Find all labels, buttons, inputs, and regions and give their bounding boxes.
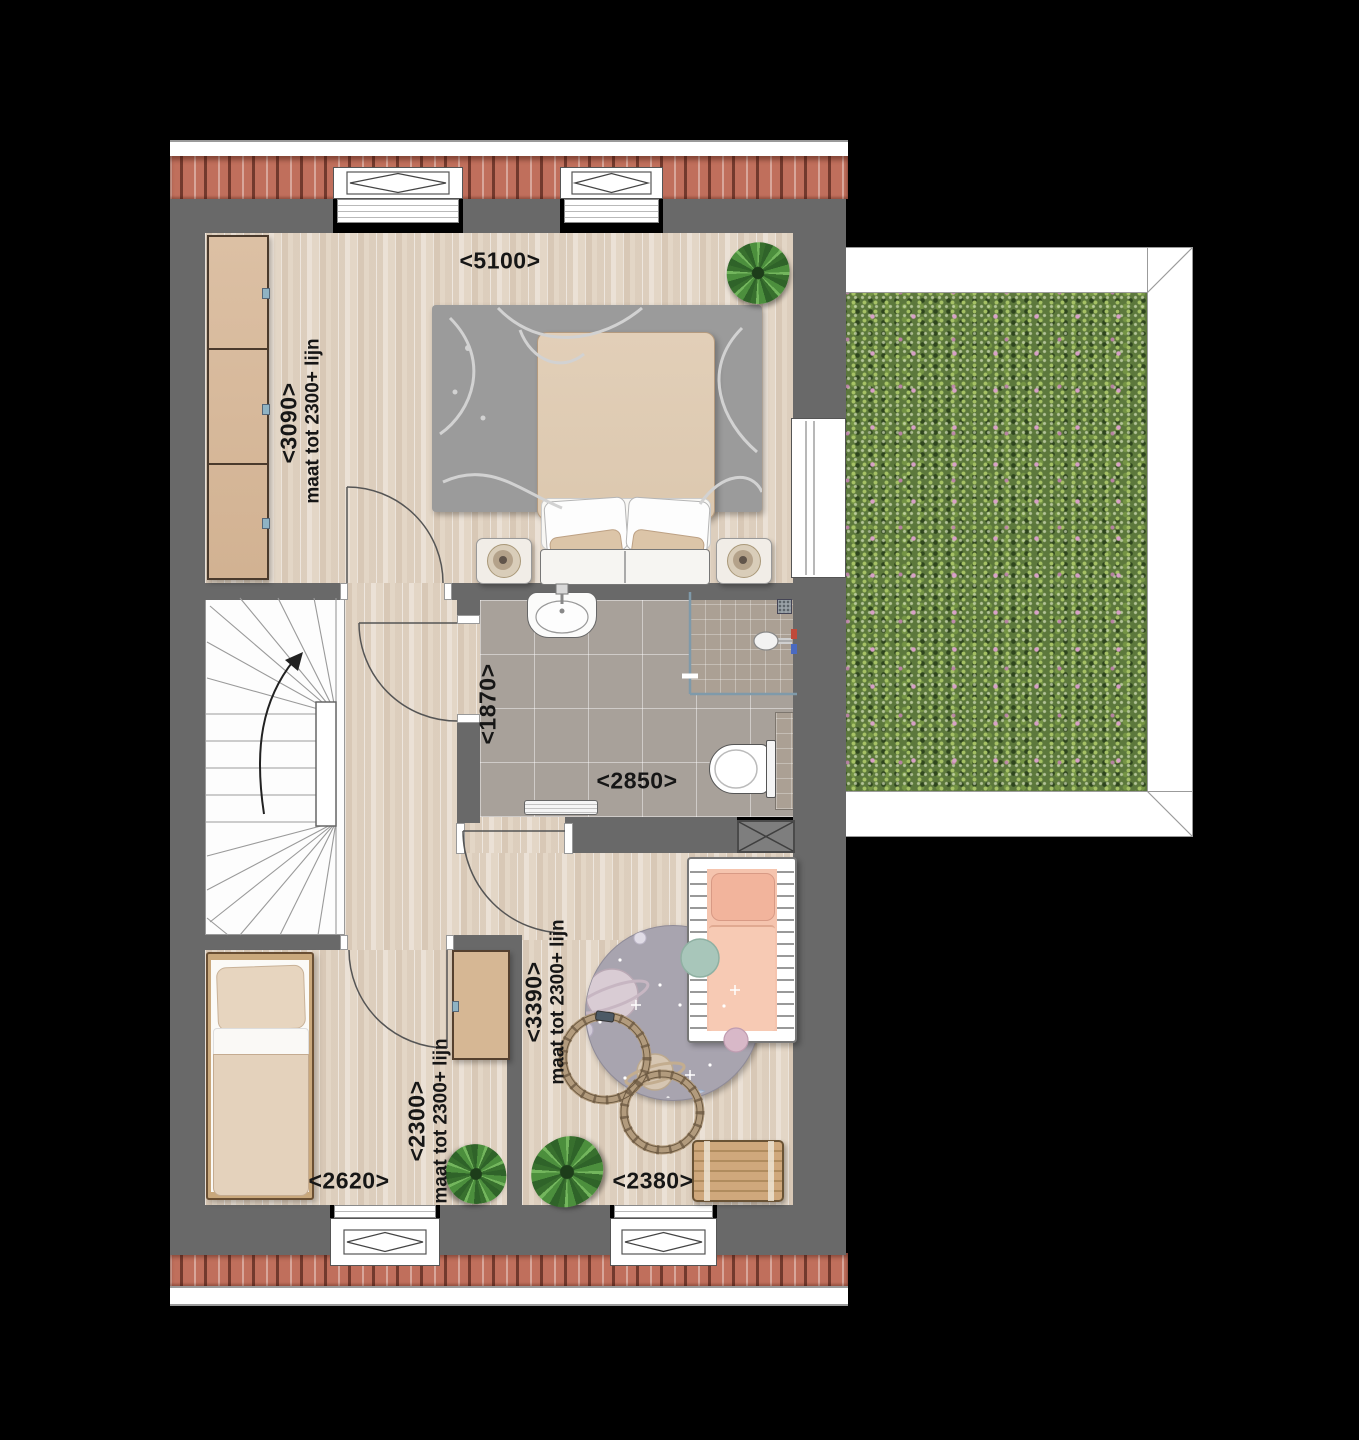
wardrobe-knob2 [262, 404, 270, 415]
stairwell [205, 598, 345, 935]
master-bed-base-split [624, 551, 626, 583]
green-roof-sedum [845, 293, 1147, 791]
floor-plan-canvas: <5100> <3090> maat tot 2300+ lijn <1870>… [0, 0, 1359, 1440]
vent-shaft [737, 820, 795, 853]
wardrobe-knob1 [262, 288, 270, 299]
jamb-bedroom2-right [446, 935, 454, 950]
single-bed-duvet [213, 1054, 309, 1196]
wardrobe-knob3 [262, 518, 270, 529]
jamb-bedroom2-left [340, 935, 348, 950]
toilet-tank [766, 740, 776, 798]
master-bed-duvet [537, 332, 715, 520]
note-bedroom3-ceiling: maat tot 2300+ lijn [549, 919, 568, 1084]
jamb-master-right [444, 583, 452, 600]
jamb-bath-top [457, 615, 480, 624]
shower-drain [777, 599, 792, 614]
lamp-right-core [739, 556, 747, 564]
wardrobe-divider1 [207, 348, 269, 350]
sink [527, 592, 597, 638]
crib-blanket [709, 925, 775, 1031]
wardrobe-divider2 [207, 463, 269, 465]
wardrobe [207, 235, 269, 580]
desk-knob [452, 1001, 459, 1012]
window-sill-top-left [337, 199, 459, 223]
jamb-master-left [340, 583, 348, 600]
hall-floor [345, 583, 460, 950]
lamp-left-core [499, 556, 507, 564]
roof-tiles-bottom [170, 1253, 848, 1286]
wall-bottom-c [717, 1205, 846, 1255]
wall-top-c [663, 199, 846, 233]
toilet-bowl [709, 744, 769, 794]
wall-top-b [463, 199, 560, 233]
crib-pillow [711, 873, 775, 921]
wall-right-upper [793, 233, 846, 418]
dormer-window-bottom-right [610, 1218, 717, 1266]
wall-left [170, 199, 205, 1255]
window-sill-bottom-right [614, 1205, 713, 1218]
roof-tiles-top [170, 156, 848, 199]
dim-bedroom3-width: <2380> [612, 1170, 693, 1193]
dim-bedroom2-width: <2620> [308, 1170, 389, 1193]
dim-bedroom2-depth: <2300> [406, 1080, 429, 1161]
window-sill-top-right [564, 199, 659, 223]
window-sill-bottom-left [334, 1205, 436, 1218]
jamb-kids-right [564, 823, 573, 854]
toy-chest-band-right [768, 1141, 774, 1201]
wall-bedroom-hall-west [170, 583, 347, 600]
dim-bathroom-depth: <1870> [477, 663, 500, 744]
side-window-master [791, 418, 846, 578]
wall-bottom-b [440, 1205, 610, 1255]
crib-rungs-right [777, 869, 794, 1031]
dormer-window-top-left [333, 167, 463, 199]
radiator [524, 800, 598, 815]
crib-rungs-left [690, 869, 707, 1031]
single-bed-pillow [216, 964, 306, 1031]
desk [452, 950, 510, 1060]
wall-bottom-a [170, 1205, 330, 1255]
wall-right-lower [793, 578, 846, 1205]
dormer-window-top-right [560, 167, 663, 199]
note-master-ceiling: maat tot 2300+ lijn [304, 338, 323, 503]
jamb-kids-left [456, 823, 465, 854]
dormer-window-bottom-left [330, 1218, 440, 1266]
green-roof-frame-bottom [845, 791, 1193, 837]
toy-chest-band-left [704, 1141, 710, 1201]
dim-bathroom-width: <2850> [596, 770, 677, 793]
wall-hall-bedroom2-west [170, 935, 348, 950]
note-bedroom2-ceiling: maat tot 2300+ lijn [432, 1038, 451, 1203]
green-roof-frame-right [1147, 247, 1193, 837]
dim-bedroom3-depth: <3390> [523, 961, 546, 1042]
green-roof-frame-top [845, 247, 1193, 293]
dim-master-depth: <3090> [278, 382, 301, 463]
roof-gutter-bottom [170, 1286, 848, 1306]
wall-bedroom-bath-east [445, 583, 793, 600]
dim-master-width: <5100> [459, 250, 540, 273]
wall-bath-bottom-b [565, 817, 737, 853]
